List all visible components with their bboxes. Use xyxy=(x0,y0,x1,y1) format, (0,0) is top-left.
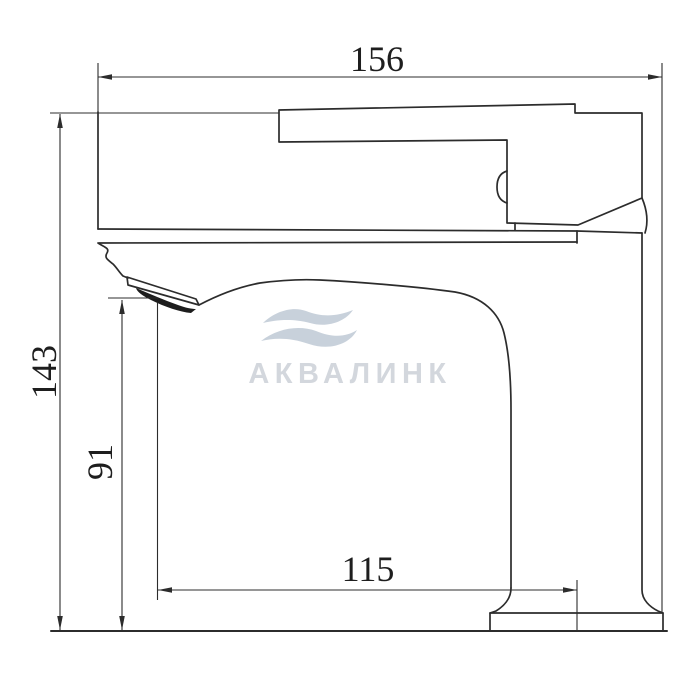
wave-icon xyxy=(261,328,357,347)
arrow-right-icon xyxy=(563,587,577,593)
base-flare-left xyxy=(490,588,511,613)
column-right-edge xyxy=(642,233,663,613)
dimension-annotations: 156 143 91 115 xyxy=(24,39,662,631)
faucet-dimension-drawing: АКВАЛИНК xyxy=(0,0,700,700)
deck-lip-line xyxy=(99,242,577,243)
dim-label-spout-reach: 115 xyxy=(342,549,395,589)
dim-label-overall-width: 156 xyxy=(350,39,404,79)
spout-underside-curve xyxy=(199,280,511,588)
dim-label-spout-height: 91 xyxy=(80,444,120,480)
arrow-up-icon xyxy=(57,114,63,128)
arrow-right-icon xyxy=(648,74,662,80)
handle-pivot-arc xyxy=(497,171,507,203)
aerator-face xyxy=(136,288,196,313)
handle-back-arc xyxy=(642,198,647,233)
dim-label-overall-height: 143 xyxy=(24,345,64,399)
arrow-up-icon xyxy=(119,300,125,314)
arrow-down-icon xyxy=(119,616,125,630)
faucet-handle-outline xyxy=(279,104,642,225)
spout-front-curve xyxy=(98,243,128,278)
wave-icon xyxy=(263,309,353,325)
watermark-brand-text: АКВАЛИНК xyxy=(248,358,451,390)
arrow-down-icon xyxy=(57,616,63,630)
technical-drawing-canvas: АКВАЛИНК xyxy=(0,0,700,700)
watermark: АКВАЛИНК xyxy=(248,309,451,390)
arrow-left-icon xyxy=(98,74,112,80)
arrow-left-icon xyxy=(158,587,172,593)
deck-top-line xyxy=(98,229,642,233)
